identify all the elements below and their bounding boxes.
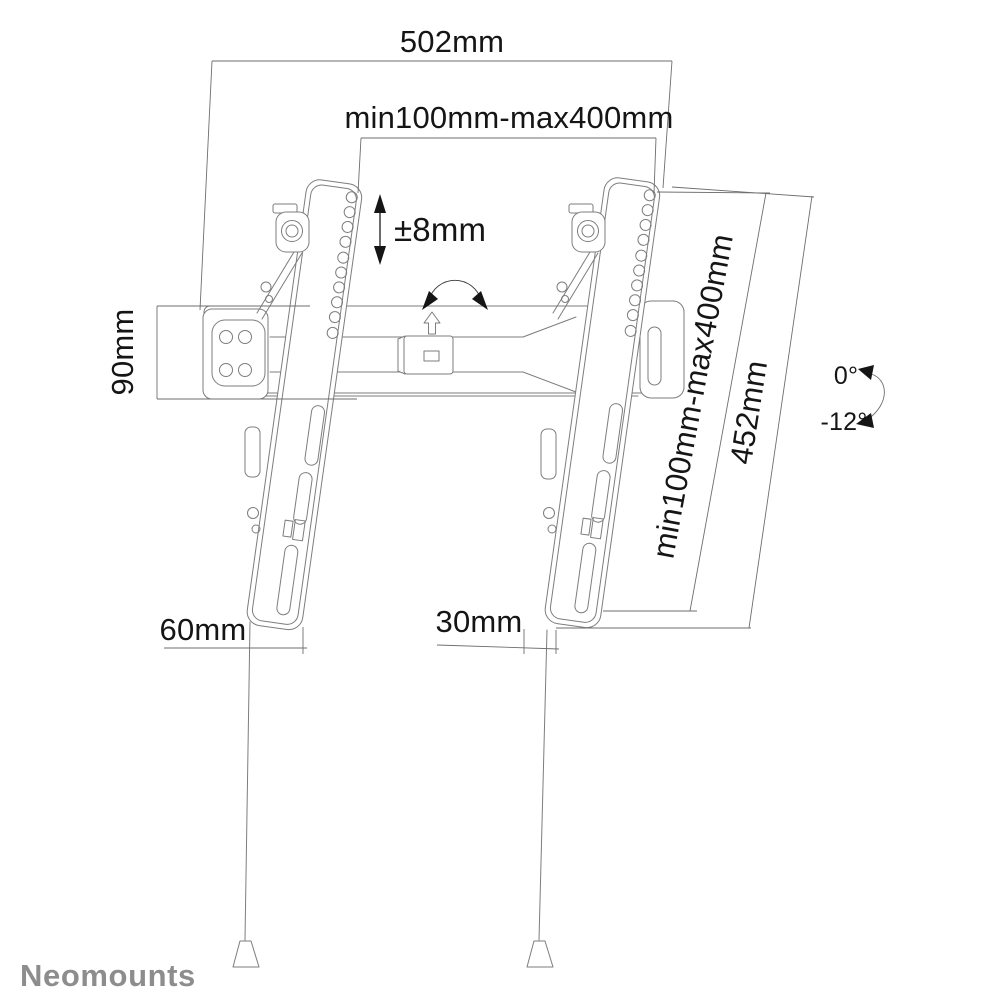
left-lock-lever: [245, 427, 260, 477]
diagram-canvas: 502mm min100mm-max400mm ±8mm 90mm 60: [0, 0, 1004, 1004]
vesa-width-label: min100mm-max400mm: [345, 100, 674, 135]
left-bracket-rail: [245, 178, 363, 631]
dim-height-adjustment: ±8mm: [374, 194, 486, 265]
right-cord-tip: [527, 941, 553, 967]
center-slide-block: [398, 336, 453, 374]
left-cord-tip: [233, 941, 259, 967]
bottom-offset-left-label: 60mm: [160, 612, 247, 647]
double-vertical-arrow-icon: [374, 194, 386, 265]
tilt-angle-indicator: 0° -12°: [821, 362, 885, 436]
wall-plate: [203, 309, 268, 399]
neomounts-logo: Neomounts: [20, 958, 196, 993]
overall-width-label: 502mm: [400, 24, 504, 59]
height-adjust-label: ±8mm: [394, 211, 486, 248]
plate-height-label: 90mm: [105, 309, 140, 396]
tilt-min-label: 0°: [834, 362, 858, 390]
right-lock-lever: [541, 429, 556, 479]
bracket-length-label: 452mm: [723, 358, 774, 467]
mount-dimension-diagram: 502mm min100mm-max400mm ±8mm 90mm 60: [0, 0, 1004, 1004]
dim-bottom-offset-right: 30mm: [436, 604, 559, 654]
bottom-offset-right-label: 30mm: [436, 604, 523, 639]
pull-cords: [233, 622, 553, 967]
right-bracket-rail: [541, 176, 661, 629]
